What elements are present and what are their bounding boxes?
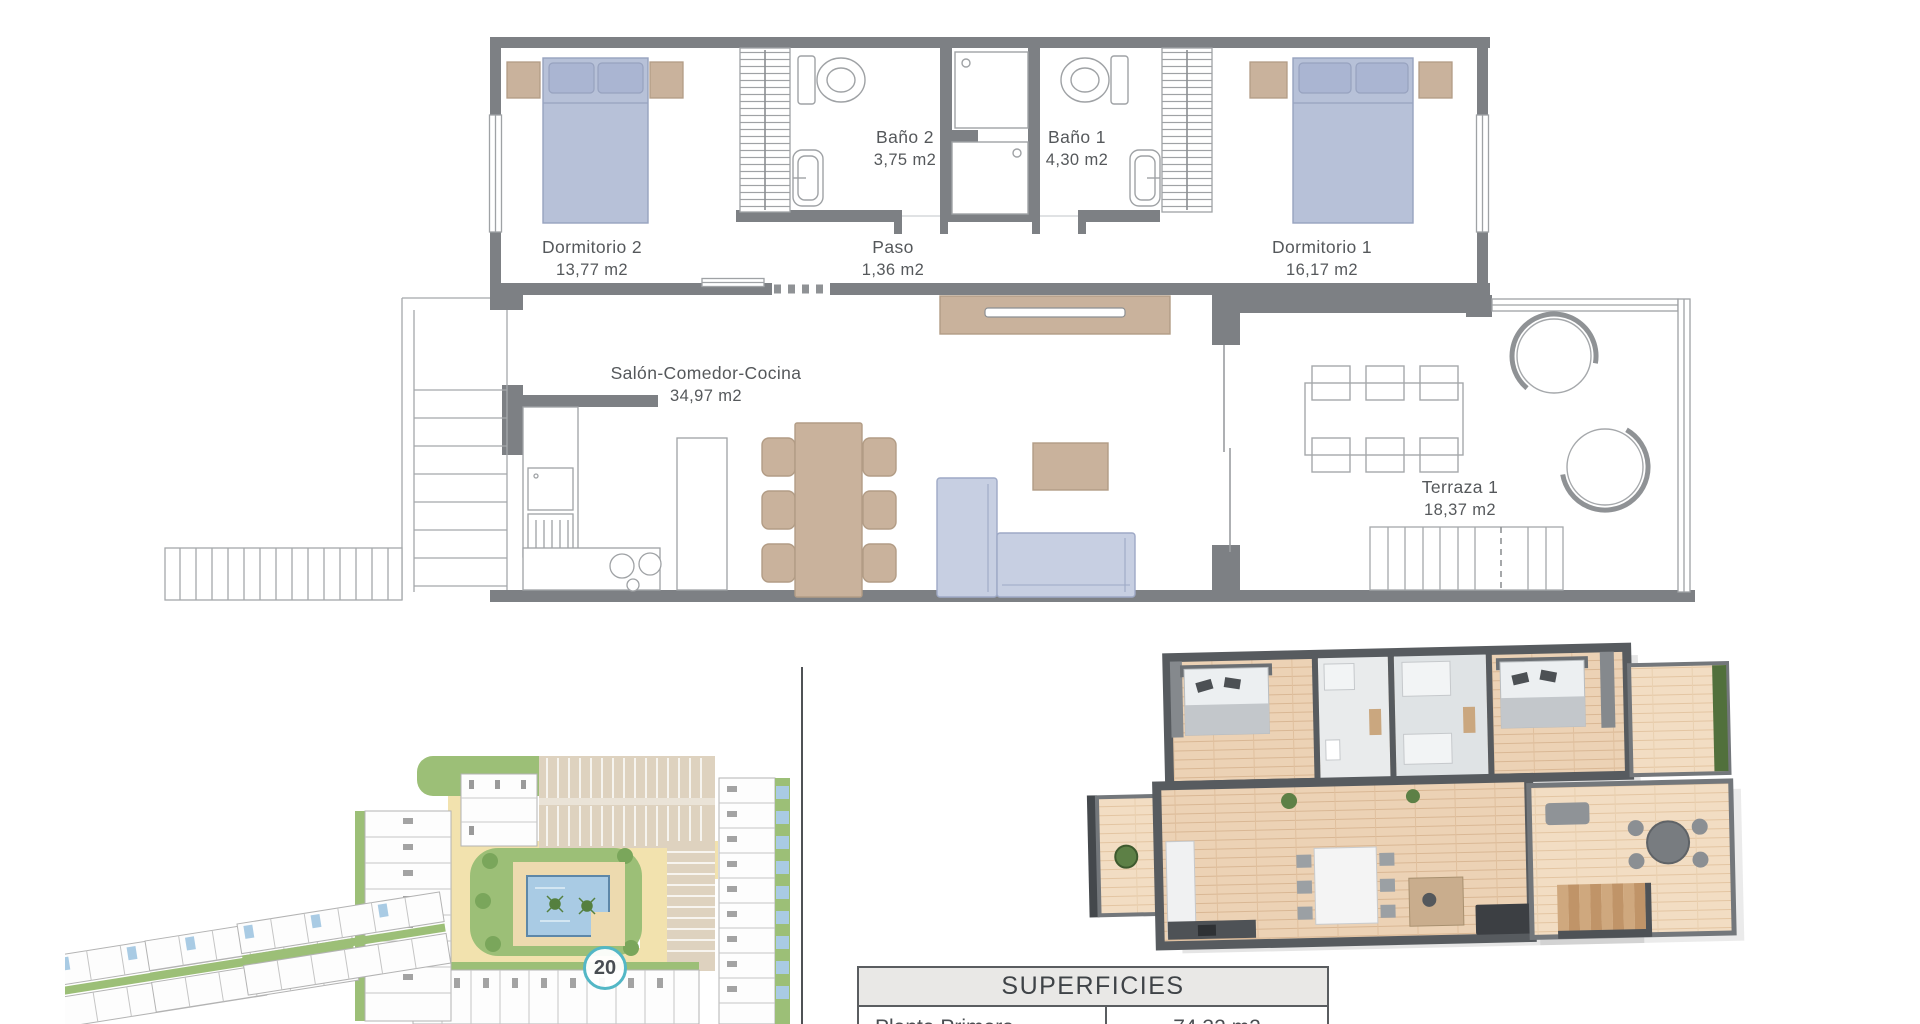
room-name: Dormitorio 1 bbox=[1272, 236, 1372, 259]
floor-plan-sheet: Dormitorio 2 13,77 m2 Baño 2 3,75 m2 Bañ… bbox=[0, 0, 1920, 1024]
render-stairs bbox=[1557, 883, 1652, 939]
coffee-table bbox=[1033, 443, 1108, 490]
tv-sideboard bbox=[940, 296, 1170, 334]
sofa bbox=[937, 478, 1135, 597]
site-houses-right-column bbox=[719, 778, 790, 1024]
render-bed-left bbox=[1170, 659, 1274, 737]
room-name: Salón-Comedor-Cocina bbox=[611, 362, 802, 385]
render-balcony-left bbox=[1087, 794, 1160, 918]
room-name: Terraza 1 bbox=[1422, 476, 1499, 499]
site-building-top bbox=[461, 774, 537, 846]
sliding-door bbox=[1224, 345, 1230, 552]
site-houses-bottom-row bbox=[413, 962, 699, 1024]
room-label-paso: Paso 1,36 m2 bbox=[862, 236, 924, 282]
room-area: 3,75 m2 bbox=[874, 149, 936, 172]
room-name: Paso bbox=[862, 236, 924, 259]
site-park-pool bbox=[470, 848, 642, 956]
room-label-terraza-1: Terraza 1 18,37 m2 bbox=[1422, 476, 1499, 522]
superficies-row: Planta Primera 74,32 m2 bbox=[859, 1007, 1327, 1024]
superficies-row-value: 74,32 m2 bbox=[1107, 1007, 1327, 1024]
stairwell bbox=[402, 298, 507, 600]
superficies-row-label: Planta Primera bbox=[859, 1007, 1107, 1024]
room-label-bano-1: Baño 1 4,30 m2 bbox=[1046, 126, 1108, 172]
dormitorio2-bed bbox=[507, 58, 683, 223]
room-area: 4,30 m2 bbox=[1046, 149, 1108, 172]
terrace-dining-set bbox=[1305, 366, 1463, 472]
room-area: 13,77 m2 bbox=[542, 259, 642, 282]
room-name: Baño 1 bbox=[1046, 126, 1108, 149]
dining-set bbox=[762, 423, 896, 597]
room-name: Baño 2 bbox=[874, 126, 936, 149]
site-parking-top bbox=[539, 756, 715, 848]
render-upper-terrace bbox=[1629, 663, 1729, 775]
room-area: 18,37 m2 bbox=[1422, 499, 1499, 522]
terrace-lounge-chairs bbox=[1512, 314, 1648, 510]
room-area: 1,36 m2 bbox=[862, 259, 924, 282]
render-dining bbox=[1296, 847, 1396, 925]
site-parking-right bbox=[667, 841, 715, 971]
floor-plan-3d-render bbox=[1075, 638, 1765, 963]
room-label-salon: Salón-Comedor-Cocina 34,97 m2 bbox=[611, 362, 802, 408]
terrace-stairs bbox=[1370, 527, 1563, 590]
superficies-title: SUPERFICIES bbox=[859, 968, 1327, 1007]
kitchen bbox=[523, 407, 727, 591]
superficies-table: SUPERFICIES Planta Primera 74,32 m2 bbox=[857, 966, 1329, 1024]
dormitorio1-bed bbox=[1250, 58, 1452, 223]
room-area: 34,97 m2 bbox=[611, 385, 802, 408]
porch-pergola bbox=[165, 548, 402, 600]
room-label-dormitorio-2: Dormitorio 2 13,77 m2 bbox=[542, 236, 642, 282]
room-label-dormitorio-1: Dormitorio 1 16,17 m2 bbox=[1272, 236, 1372, 282]
section-divider bbox=[801, 667, 803, 1024]
room-name: Dormitorio 2 bbox=[542, 236, 642, 259]
site-plan bbox=[65, 756, 790, 1024]
room-area: 16,17 m2 bbox=[1272, 259, 1372, 282]
render-terrace bbox=[1529, 781, 1734, 940]
unit-number-badge: 20 bbox=[583, 946, 627, 990]
room-label-bano-2: Baño 2 3,75 m2 bbox=[874, 126, 936, 172]
